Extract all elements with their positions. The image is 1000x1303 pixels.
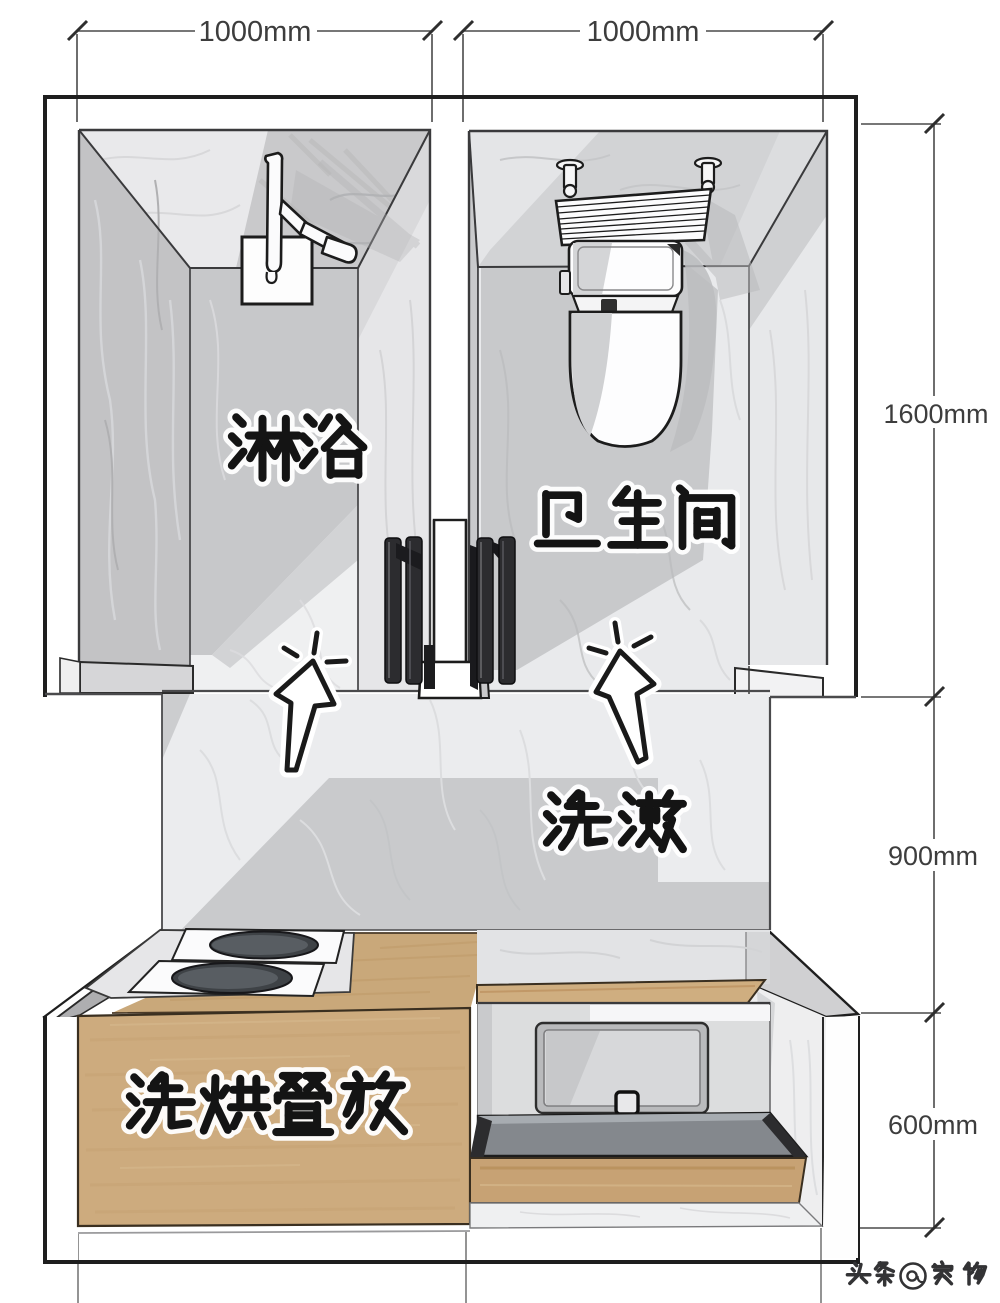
svg-text:600mm: 600mm	[888, 1110, 978, 1140]
svg-text:1000mm: 1000mm	[587, 16, 700, 48]
svg-text:1000mm: 1000mm	[199, 16, 312, 48]
svg-text:900mm: 900mm	[888, 841, 978, 871]
svg-text:1600mm: 1600mm	[883, 399, 988, 429]
